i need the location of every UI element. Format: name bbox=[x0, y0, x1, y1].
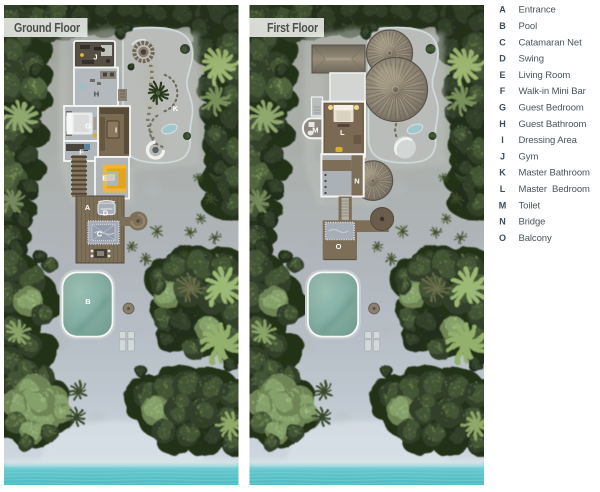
svg-text:B: B bbox=[499, 21, 506, 31]
svg-text:Swing: Swing bbox=[519, 54, 544, 65]
svg-text:First Floor: First Floor bbox=[267, 20, 318, 35]
svg-text:Ground Floor: Ground Floor bbox=[14, 20, 80, 35]
svg-text:K: K bbox=[499, 168, 506, 178]
svg-text:J: J bbox=[500, 151, 505, 161]
svg-text:Gym: Gym bbox=[519, 151, 539, 162]
svg-text:Master Bedroom: Master Bedroom bbox=[519, 184, 591, 195]
svg-text:Catamaran Net: Catamaran Net bbox=[519, 37, 583, 48]
svg-text:I: I bbox=[501, 135, 504, 145]
svg-text:Pool: Pool bbox=[519, 21, 538, 32]
svg-text:F: F bbox=[500, 86, 506, 96]
svg-text:C: C bbox=[499, 37, 506, 47]
svg-text:Walk-in Mini Bar: Walk-in Mini Bar bbox=[519, 86, 586, 97]
svg-text:O: O bbox=[499, 233, 506, 243]
svg-text:Guest Bathroom: Guest Bathroom bbox=[519, 119, 587, 130]
svg-text:H: H bbox=[499, 119, 506, 129]
svg-text:E: E bbox=[499, 70, 505, 80]
svg-text:Entrance: Entrance bbox=[519, 5, 556, 16]
svg-text:D: D bbox=[499, 54, 506, 64]
svg-text:A: A bbox=[499, 5, 506, 15]
svg-text:L: L bbox=[500, 184, 506, 194]
svg-text:Toilet: Toilet bbox=[519, 200, 541, 211]
svg-text:Dressing Area: Dressing Area bbox=[519, 135, 578, 146]
svg-text:M: M bbox=[499, 200, 507, 210]
svg-text:Guest Bedroom: Guest Bedroom bbox=[519, 103, 584, 114]
svg-text:Bridge: Bridge bbox=[519, 217, 546, 228]
svg-text:G: G bbox=[499, 103, 506, 113]
svg-text:N: N bbox=[499, 217, 506, 227]
svg-text:Living Room: Living Room bbox=[519, 70, 571, 81]
svg-text:Balcony: Balcony bbox=[519, 233, 552, 244]
svg-text:Master Bathroom: Master Bathroom bbox=[519, 168, 591, 179]
